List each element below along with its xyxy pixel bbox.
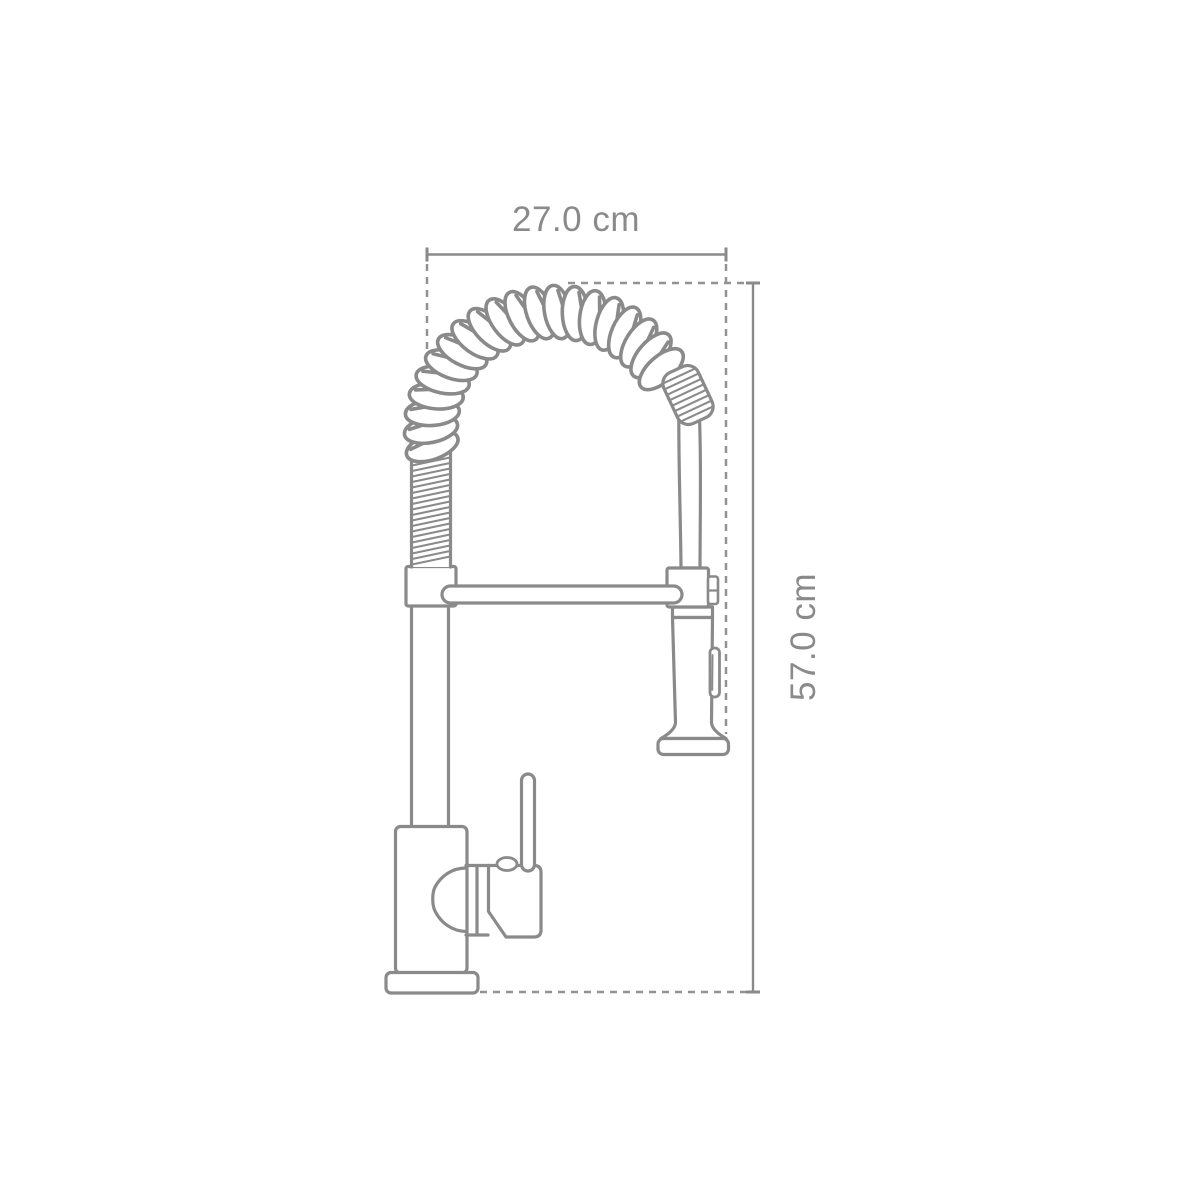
faucet-handle-lever — [522, 774, 535, 871]
faucet-drawing — [386, 283, 729, 993]
faucet-spring-coil-arch — [402, 283, 690, 468]
faucet-base-plate — [386, 973, 478, 994]
valve-band — [466, 866, 490, 936]
sprayer-face — [658, 739, 729, 755]
faucet-dimension-diagram: 27.0 cm 57.0 cm — [0, 0, 1200, 1200]
valve-cartridge — [489, 866, 542, 938]
diagram-canvas: 27.0 cm 57.0 cm — [0, 0, 1200, 1200]
width-dimension-label: 27.0 cm — [512, 200, 640, 239]
sprayer-button — [710, 648, 720, 697]
valve-oval-detail — [497, 858, 517, 871]
support-bar — [442, 586, 682, 603]
mount-block-buttons — [708, 577, 718, 605]
faucet-riser-tube — [412, 603, 449, 829]
height-dimension-label: 57.0 cm — [784, 573, 823, 701]
